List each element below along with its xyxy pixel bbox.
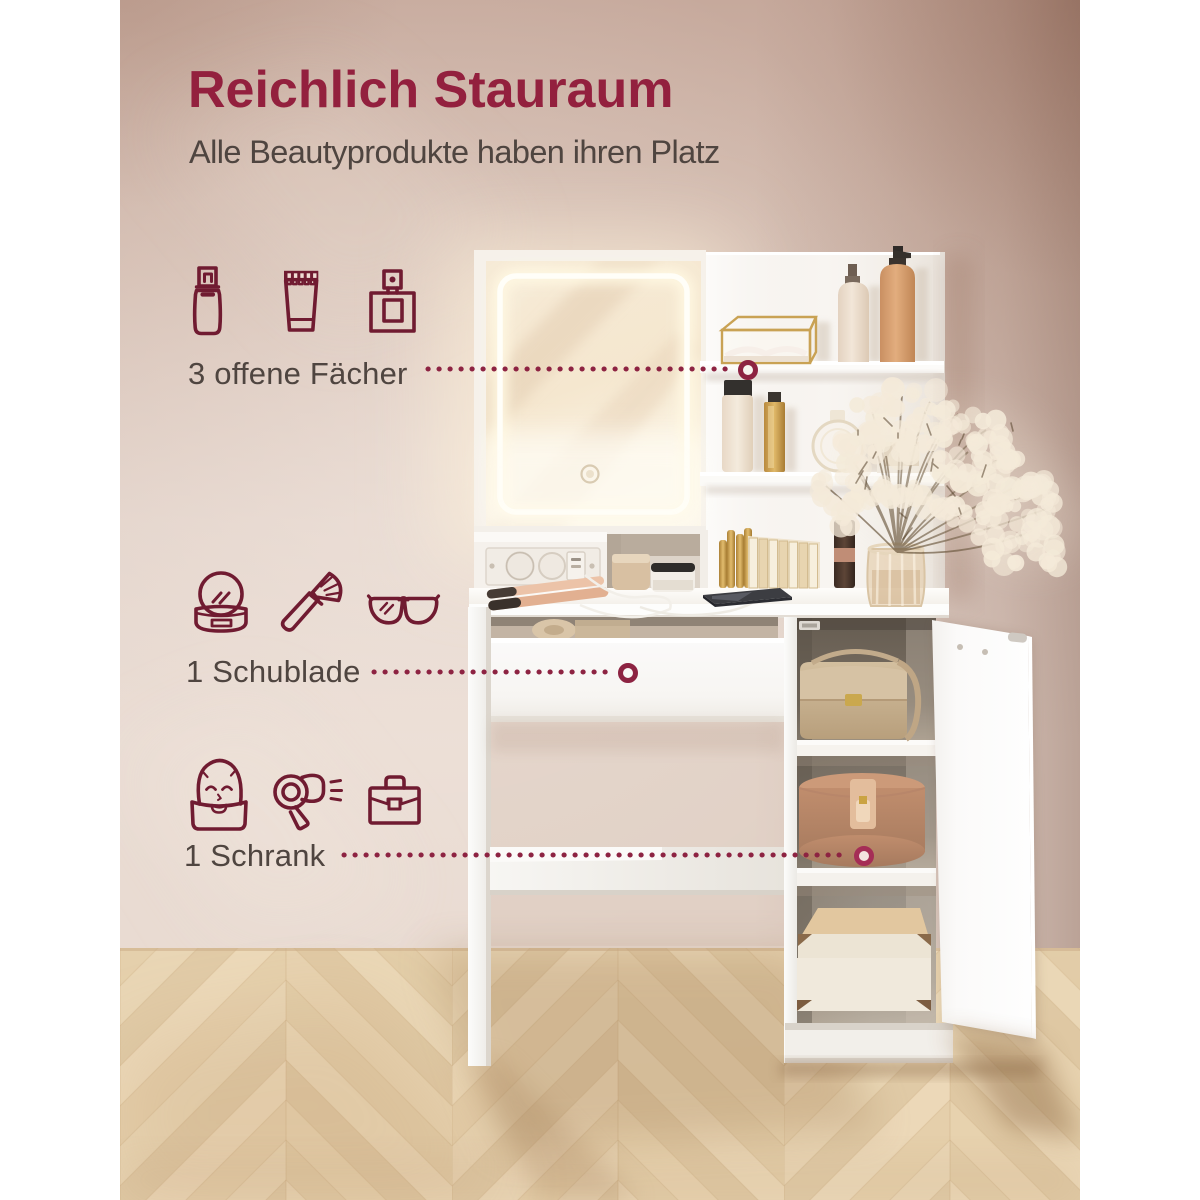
svg-text:Alle Beautyprodukte haben ihre: Alle Beautyprodukte haben ihren Platz (189, 134, 720, 170)
svg-text:3 offene Fächer: 3 offene Fächer (188, 356, 408, 391)
svg-text:1 Schrank: 1 Schrank (184, 838, 326, 873)
svg-text:1 Schublade: 1 Schublade (186, 654, 361, 689)
svg-text:Reichlich Stauraum: Reichlich Stauraum (188, 61, 673, 119)
